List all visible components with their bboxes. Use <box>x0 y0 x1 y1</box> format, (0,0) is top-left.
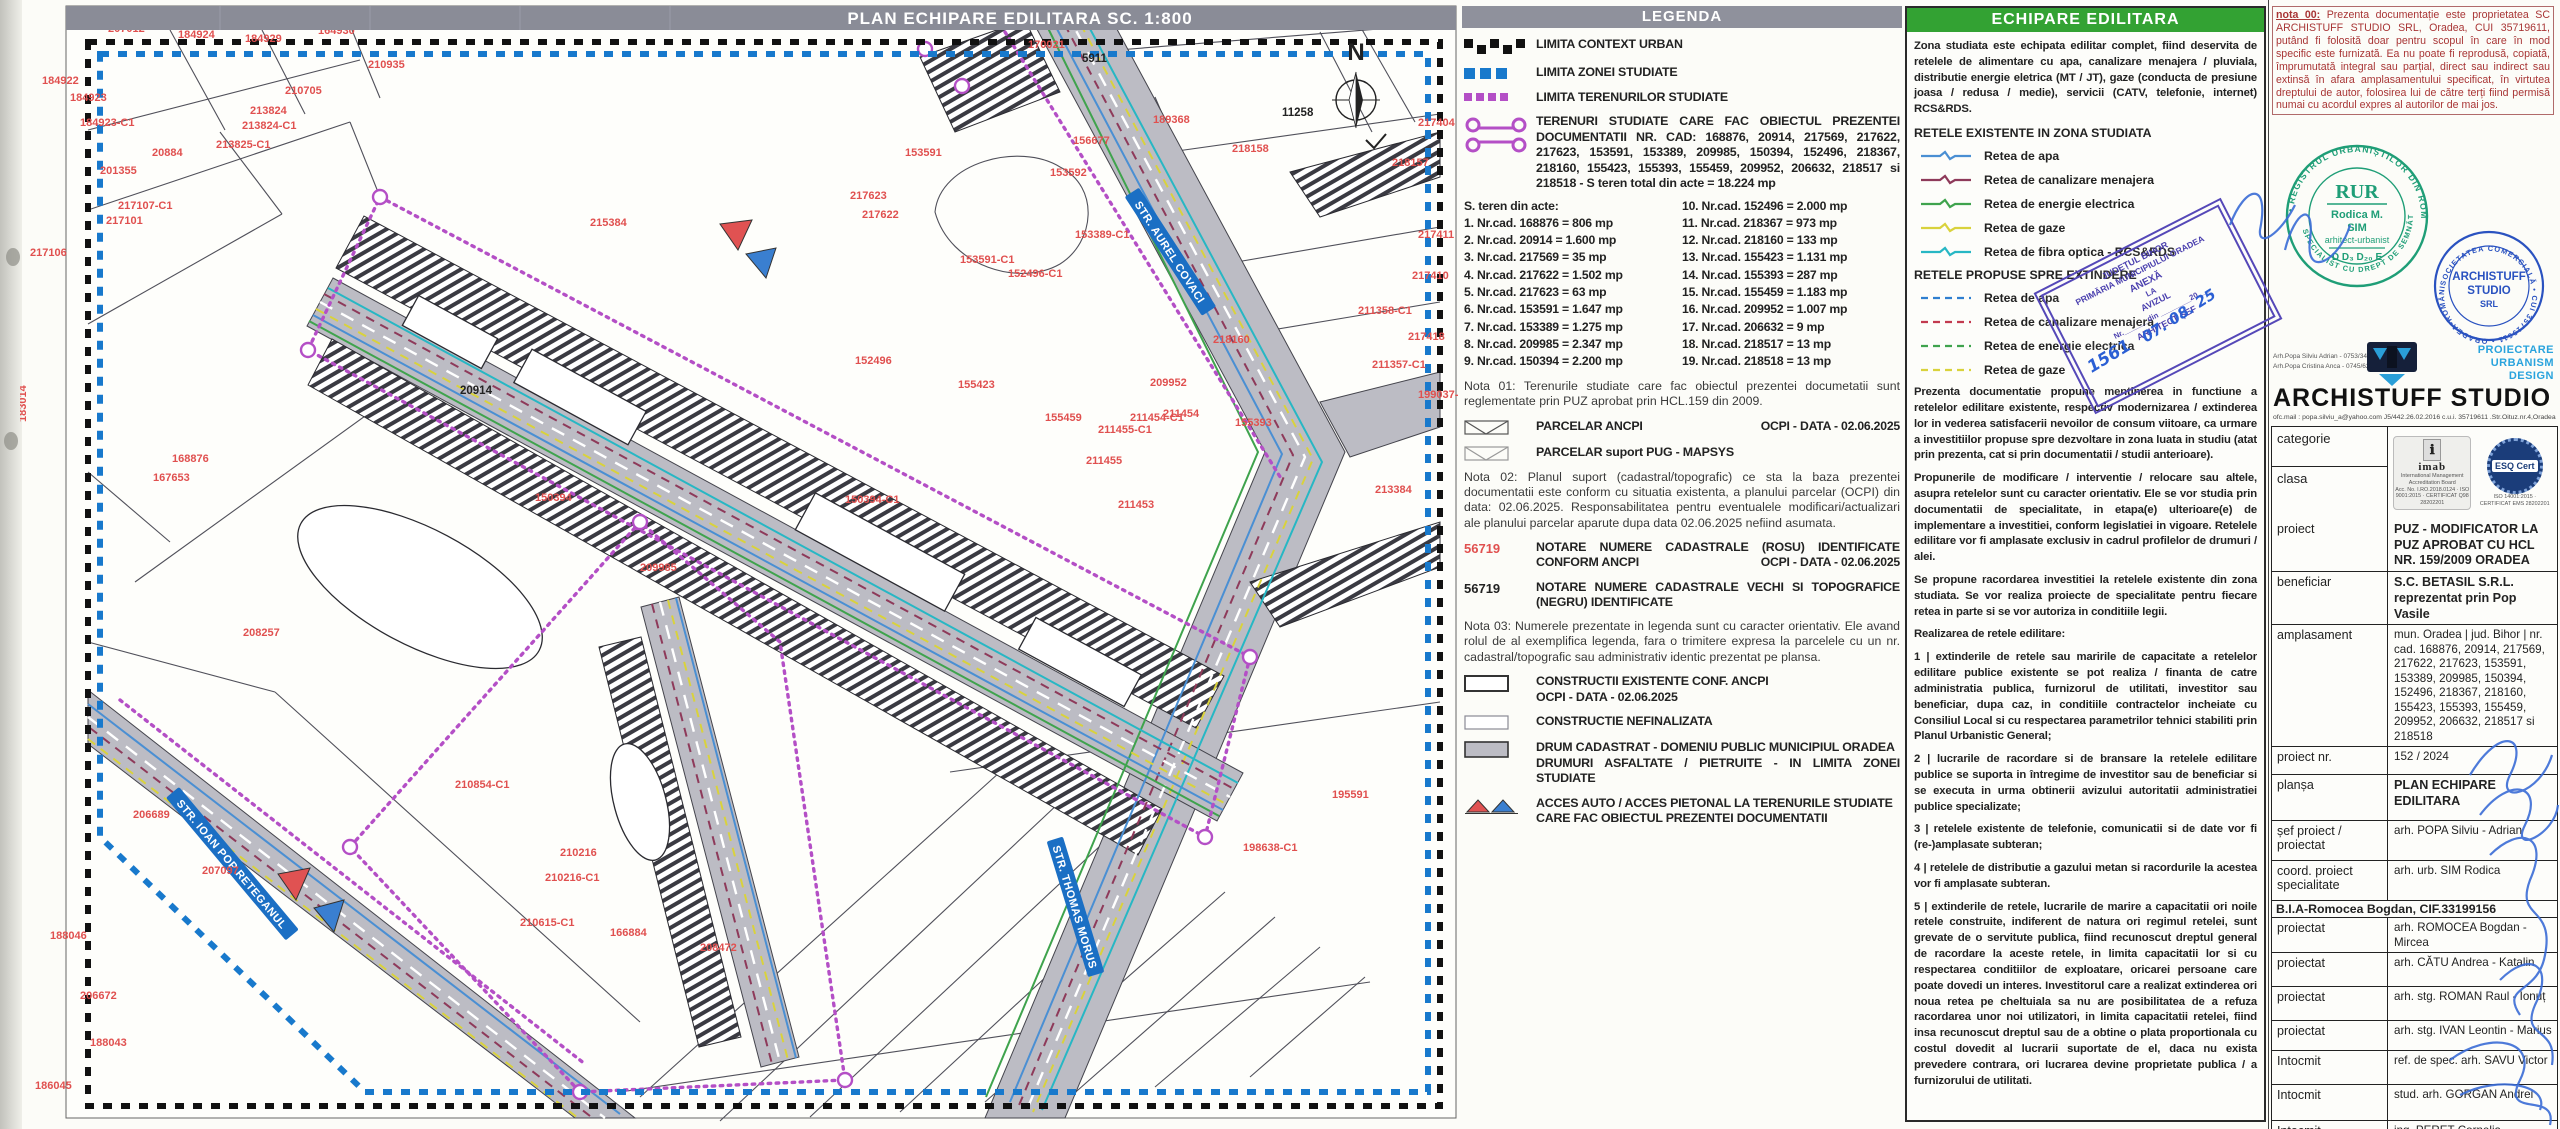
scanned-plan-sheet: N STR. AUREL COVACISTR. IOAN POP RETEGAN… <box>0 0 2560 1129</box>
titleblock-label: Intocmit <box>2272 1051 2388 1084</box>
parcel-number-label: 20914 <box>460 385 493 397</box>
parcel-number-label: 201355 <box>100 165 137 177</box>
legend-label: TERENURI STUDIATE CARE FAC OBIECTUL PREZ… <box>1536 114 1900 192</box>
legend-label: NOTARE NUMERE CADASTRALE (ROSU) IDENTIFI… <box>1536 540 1900 571</box>
titleblock-value: S.C. BETASIL S.R.L.reprezentat prin Pop … <box>2388 572 2557 624</box>
echipare-title: ECHIPARE EDILITARA <box>1907 8 2264 32</box>
titleblock-label: amplasament <box>2272 625 2388 746</box>
legend-panel: LEGENDA LIMITA CONTEXT URBAN LIMITA ZONE… <box>1462 6 1902 1124</box>
network-label: Retea de gaze <box>1984 221 2065 235</box>
esq-certificate-badge: ESQ Cert ISO 14001:2015 · CERTIFICAT EMS… <box>2478 438 2552 508</box>
firm-name: ARCHISTUFF STUDIO <box>2273 384 2551 413</box>
echipare-intro: Zona studiata este echipata edilitar com… <box>1914 39 2257 118</box>
parcel-number-label: 210216 <box>560 847 597 859</box>
network-line-swatch <box>1920 316 1972 328</box>
nota-03: Nota 03: Numerele prezentate in legenda … <box>1464 619 1900 665</box>
parcel-number-label: 211455-C1 <box>1098 424 1152 436</box>
parcel-area-line: 9. Nr.cad. 150394 = 2.200 mp <box>1464 353 1682 370</box>
parcel-number-label: 211358-C1 <box>1358 305 1412 317</box>
parcel-number-label: 168876 <box>172 453 209 465</box>
imab-icon: ℹ <box>2423 439 2441 461</box>
parcel-number-label: 153591 <box>905 147 942 159</box>
parcel-number-label: 210935 <box>368 59 405 71</box>
titleblock-value: PLAN ECHIPARE EDILITARA <box>2388 775 2557 820</box>
network-line-swatch <box>1920 292 1972 304</box>
binder-hole <box>6 248 20 266</box>
service-line: DESIGN <box>2478 370 2554 383</box>
legend-label: LIMITA ZONEI STUDIATE <box>1536 65 1900 81</box>
echipare-paragraph: 4 | retelele de distributie a gazului me… <box>1914 861 2257 893</box>
network-line-swatch <box>1920 340 1972 352</box>
legend-label: PARCELAR suport PUG - MAPSYS <box>1536 445 1900 461</box>
titleblock-value: arh. urb. SIM Rodica <box>2388 861 2557 900</box>
titleblock-value: PUZ - MODIFICATOR LA PUZ APROBAT CU HCL … <box>2388 519 2557 571</box>
parcel-number-label: 5911 <box>1082 53 1108 65</box>
legend-label: LIMITA TERENURILOR STUDIATE <box>1536 90 1900 106</box>
parcel-envelope-icon <box>1464 419 1536 436</box>
rur-person: SIM <box>2347 222 2367 234</box>
rur-stamp: • REGISTRUL URBANIȘTILOR DIN ROMÂNIA • S… <box>2279 136 2435 296</box>
parcel-number-label: 155459 <box>1045 412 1082 424</box>
legend-item-drum: DRUM CADASTRAT - DOMENIU PUBLIC MUNICIPI… <box>1464 740 1900 787</box>
network-legend-row: Retea de apa <box>1920 148 2257 164</box>
legend-item-constructie-nefinalizata: CONSTRUCTIE NEFINALIZATA <box>1464 714 1900 731</box>
parcel-number-label: 198638-C1 <box>1243 842 1297 854</box>
ocpi-date: OCPI - DATA - 02.06.2025 <box>1761 555 1900 569</box>
titleblock-row: Intocmiting. PEREȚ Cornelia <box>2272 1120 2557 1129</box>
parcel-number-label: 195591 <box>1332 789 1369 801</box>
parcel-area-line: 18. Nr.cad. 218517 = 13 mp <box>1682 336 1900 353</box>
titleblock-label: Intocmit <box>2272 1121 2388 1129</box>
white-box-icon <box>1464 674 1536 693</box>
titleblock-label: șef proiect /proiectat <box>2272 821 2388 860</box>
parcel-number-label: 184923 <box>70 92 107 104</box>
legend-label: LIMITA CONTEXT URBAN <box>1536 37 1900 53</box>
network-line-swatch <box>1920 246 1972 258</box>
parcel-number-label: 210854-C1 <box>455 779 509 791</box>
parcel-number-label: 211453 <box>1118 499 1154 511</box>
imab-subtitle: International Management Accreditation B… <box>2395 473 2469 487</box>
retele-existente-header: RETELE EXISTENTE IN ZONA STUDIATA <box>1914 126 2257 140</box>
parcel-area-line: 8. Nr.cad. 209985 = 2.347 mp <box>1464 336 1682 353</box>
parcel-number-label: 211357-C1 <box>1372 359 1426 371</box>
parcel-area-line: 7. Nr.cad. 153389 = 1.275 mp <box>1464 319 1682 336</box>
parcel-number-label: 217623 <box>850 190 887 202</box>
map-title: PLAN ECHIPARE EDILITARA SC. 1:800 <box>847 9 1192 28</box>
legend-label: ACCES AUTO / ACCES PIETONAL LA TERENURIL… <box>1536 796 1900 827</box>
titleblock-label: beneficiar <box>2272 572 2388 624</box>
parcel-number-label: 208472 <box>700 942 737 954</box>
firm-services: PROIECTARE URBANISM DESIGN <box>2478 344 2554 384</box>
parcel-area-line: 11. Nr.cad. 218367 = 973 mp <box>1682 215 1900 232</box>
parcel-number-label: 167653 <box>153 472 190 484</box>
thin-white-box-icon <box>1464 714 1536 731</box>
parcel-number-label: 217418 <box>1408 331 1445 343</box>
parcel-number-label: 208257 <box>243 627 280 639</box>
parcel-number-label: 210705 <box>285 85 322 97</box>
parcel-number-label: 184924 <box>178 29 216 41</box>
parcel-area-line: 5. Nr.cad. 217623 = 63 mp <box>1464 284 1682 301</box>
parcel-number-label: 218160 <box>1213 334 1250 346</box>
titleblock-value: arh. CĂTU Andrea - Katalin <box>2388 953 2557 986</box>
service-line: URBANISM <box>2478 357 2554 370</box>
parcel-number-label: 152496 <box>855 355 892 367</box>
titleblock-row: proiectatarh. ROMOCEA Bogdan - Mircea <box>2272 917 2557 952</box>
parcel-number-label: 188043 <box>90 1037 127 1049</box>
nota-00-lead: nota 00: <box>2276 9 2320 21</box>
parcel-number-label: 184929 <box>245 33 282 45</box>
legend-label: CONSTRUCTII EXISTENTE CONF. ANCPIOCPI - … <box>1536 674 1900 705</box>
blue-dashed-line-icon <box>1464 65 1536 80</box>
parcel-number-label: 206672 <box>80 990 117 1002</box>
esq-name: ESQ Cert <box>2492 460 2538 472</box>
parcel-number-label: 150394-C1 <box>845 494 899 506</box>
gray-box-icon <box>1464 740 1536 759</box>
parcel-number-label: 209985 <box>640 562 677 574</box>
titleblock-row: Intocmitstud. arh. GORGAN Andrei <box>2272 1084 2557 1120</box>
parcel-number-label: 217411 <box>1418 229 1454 241</box>
parcel-number-label: 210216-C1 <box>545 872 599 884</box>
parcel-number-label: 217101 <box>106 215 143 227</box>
firm-registration-info: ofc.mail : popa.silviu_a@yahoo.com J5/44… <box>2273 414 2557 421</box>
esq-cert-lines: ISO 14001:2015 · CERTIFICAT EMS 28202201 <box>2478 494 2552 508</box>
parcel-number-label: 207097 <box>202 865 239 877</box>
titleblock-value: arh. stg. IVAN Leontin - Marius <box>2388 1021 2557 1050</box>
titleblock-row: proiectatarh. stg. ROMAN Raul - Ionuț <box>2272 986 2557 1020</box>
network-line-swatch <box>1920 150 1972 162</box>
legend-item-zona-studiata: LIMITA ZONEI STUDIATE <box>1464 65 1900 81</box>
legend-label: CONSTRUCTIE NEFINALIZATA <box>1536 714 1900 730</box>
company-name: STUDIO <box>2467 285 2511 297</box>
map-title-bar: PLAN ECHIPARE EDILITARA SC. 1:800 <box>66 6 1456 30</box>
rur-title: arhitect-urbanist <box>2325 235 2390 245</box>
network-label: Retea de gaze <box>1984 363 2065 377</box>
north-label: N <box>1347 39 1364 66</box>
titleblock-row: Intocmitref. de spec. arh. SAVU Victor <box>2272 1050 2557 1084</box>
parcel-number-label: 11258 <box>1282 107 1314 119</box>
echipare-paragraph: Realizarea de retele edilitare: <box>1914 627 2257 643</box>
sample-number-black: 56719 <box>1464 580 1536 596</box>
parcel-number-label: 153389-C1 <box>1075 229 1129 241</box>
rur-person: Rodica M. <box>2331 209 2383 221</box>
titleblock-value: ing. PEREȚ Cornelia <box>2388 1121 2557 1129</box>
parcel-number-label: 213824-C1 <box>242 120 296 132</box>
titleblock-label: proiectat <box>2272 918 2388 952</box>
titleblock-row: beneficiarS.C. BETASIL S.R.L.reprezentat… <box>2272 571 2557 624</box>
rur-categories: D D₃ D₂₀ E <box>2332 252 2383 263</box>
parcel-envelope-icon <box>1464 445 1536 462</box>
nota-00-copyright: nota 00: Prezenta documentație este prop… <box>2272 6 2554 115</box>
legend-item-terenuri-obiect: TERENURI STUDIATE CARE FAC OBIECTUL PREZ… <box>1464 114 1900 192</box>
archistuff-logo <box>2365 342 2419 388</box>
parcel-number-label: 213384 <box>1375 484 1413 496</box>
parcel-number-label: 152496-C1 <box>1008 268 1062 280</box>
parcel-number-label: 153592 <box>1050 167 1087 179</box>
parcel-number-label: 213824 <box>250 105 288 117</box>
parcel-number-label: 184922 <box>42 75 79 87</box>
parcel-area-line: 12. Nr.cad. 218160 = 133 mp <box>1682 232 1900 249</box>
parcel-area-line: 14. Nr.cad. 155393 = 287 mp <box>1682 267 1900 284</box>
parcel-area-line: 1. Nr.cad. 168876 = 806 mp <box>1464 215 1682 232</box>
company-name: SRL <box>2480 299 2499 309</box>
parcel-area-line: 17. Nr.cad. 206632 = 9 mp <box>1682 319 1900 336</box>
imab-cert-lines: Acc. No. I.RO.2018.0124 · ISO 9001:2015 … <box>2395 487 2469 507</box>
legend-item-notare-rosu: 56719 NOTARE NUMERE CADASTRALE (ROSU) ID… <box>1464 540 1900 571</box>
scanner-edge <box>0 0 22 1129</box>
magenta-dashed-line-icon <box>1464 90 1536 103</box>
legend-item-acces: ACCES AUTO / ACCES PIETONAL LA TERENURIL… <box>1464 796 1900 827</box>
parcel-number-label: 170021 <box>1028 39 1065 51</box>
parcel-number-label: 211455 <box>1086 455 1122 467</box>
titleblock-label: coord. proiectspecialitate <box>2272 861 2388 900</box>
company-stamp: SOCIETATEA COMERCIALĂ • CUI 35719611 • O… <box>2431 228 2547 344</box>
titleblock-row: șef proiect /proiectatarh. POPA Silviu -… <box>2272 820 2557 860</box>
legend-item-terenuri-studiate: LIMITA TERENURILOR STUDIATE <box>1464 90 1900 106</box>
parcel-number-label: 217404 <box>1418 117 1456 129</box>
imab-name: imab <box>2395 461 2469 473</box>
echipare-paragraph: 5 | extinderile de retele, lucrarile de … <box>1914 900 2257 1090</box>
titleblock-value: 152 / 2024 <box>2388 747 2557 774</box>
titleblock-section-title: B.I.A-Romocea Bogdan, CIF.33199156 <box>2272 901 2557 917</box>
titleblock-row: proiectatarh. stg. IVAN Leontin - Marius <box>2272 1020 2557 1050</box>
clasa-label: clasa <box>2272 467 2387 515</box>
titleblock-label: proiectat <box>2272 953 2388 986</box>
parcel-number-label: 183014 <box>20 384 29 422</box>
legend-title: LEGENDA <box>1462 6 1902 28</box>
legend-label: PARCELAR ANCPIOCPI - DATA - 02.06.2025 <box>1536 419 1900 435</box>
parcel-number-label: 209952 <box>1150 377 1187 389</box>
parcel-number-label: 218158 <box>1232 143 1269 155</box>
black-dashed-line-icon <box>1464 37 1536 56</box>
company-name: ARCHISTUFF <box>2452 271 2525 283</box>
titleblock-row: B.I.A-Romocea Bogdan, CIF.33199156 <box>2272 900 2557 917</box>
nota-02: Nota 02: Planul suport (cadastral/topogr… <box>1464 470 1900 531</box>
parcel-area-line: 13. Nr.cad. 155423 = 1.131 mp <box>1682 249 1900 266</box>
certification-rows: categorie clasa ℹ imab International Man… <box>2272 427 2557 519</box>
network-line-swatch <box>1920 174 1972 186</box>
parcel-area-line: 16. Nr.cad. 209952 = 1.007 mp <box>1682 301 1900 318</box>
parcel-number-label: 217107-C1 <box>118 200 172 212</box>
cadastral-map: N STR. AUREL COVACISTR. IOAN POP RETEGAN… <box>20 2 1458 1123</box>
titleblock-row: amplasamentmun. Oradea | jud. Bihor | nr… <box>2272 624 2557 746</box>
network-legend-row: Retea de canalizare menajera <box>1920 172 2257 188</box>
titleblock-value: ref. de spec. arh. SAVU Victor <box>2388 1051 2557 1084</box>
legend-label: DRUM CADASTRAT - DOMENIU PUBLIC MUNICIPI… <box>1536 740 1900 787</box>
title-block-column: nota 00: Prezenta documentație este prop… <box>2268 0 2560 1129</box>
echipare-paragraphs: Prezenta documentatie propune mentinerea… <box>1914 385 2257 1089</box>
network-line-swatch <box>1920 364 1972 376</box>
network-label: Retea de energie electrica <box>1984 197 2134 211</box>
titleblock-label: proiect nr. <box>2272 747 2388 774</box>
imab-certificate-badge: ℹ imab International Management Accredit… <box>2393 436 2471 510</box>
echipare-paragraph: Prezenta documentatie propune mentinerea… <box>1914 385 2257 464</box>
legend-label: NOTARE NUMERE CADASTRALE VECHI SI TOPOGR… <box>1536 580 1900 611</box>
parcel-number-label: 211454 <box>1163 408 1200 420</box>
parcel-number-label: 166884 <box>610 927 648 939</box>
parcel-number-label: 217106 <box>30 247 67 259</box>
parcel-area-line: 2. Nr.cad. 20914 = 1.600 mp <box>1464 232 1682 249</box>
parcel-area-line: 3. Nr.cad. 217569 = 35 mp <box>1464 249 1682 266</box>
titleblock-row: coord. proiectspecialitatearh. urb. SIM … <box>2272 860 2557 900</box>
parcel-number-label: 188046 <box>50 930 87 942</box>
parcel-number-label: 189368 <box>1153 114 1190 126</box>
echipare-paragraph: 1 | extinderile de retele sau maririle d… <box>1914 650 2257 745</box>
titleblock-value: mun. Oradea | jud. Bihor | nr. cad. 1688… <box>2388 625 2557 746</box>
parcel-area-line: 10. Nr.cad. 152496 = 2.000 mp <box>1682 198 1900 215</box>
parcel-number-label: 155423 <box>958 379 995 391</box>
parcel-number-label: 217410 <box>1412 270 1449 282</box>
parcel-number-label: 156677 <box>1073 135 1110 147</box>
parcel-area-list: S. teren din acte: 1. Nr.cad. 168876 = 8… <box>1464 198 1900 371</box>
titleblock-value: arh. stg. ROMAN Raul - Ionuț <box>2388 987 2557 1020</box>
nota-00-body: Prezenta documentație este proprietatea … <box>2276 9 2550 111</box>
titleblock-label: planșa <box>2272 775 2388 820</box>
parcel-number-label: 153591-C1 <box>960 254 1014 266</box>
svg-text:• REGISTRUL URBANIȘTILOR DIN R: • REGISTRUL URBANIȘTILOR DIN ROMÂNIA • <box>2279 136 2429 220</box>
titleblock-label: proiect <box>2272 519 2388 571</box>
echipare-paragraph: 3 | retelele existente de telefonie, com… <box>1914 822 2257 854</box>
legend-item-notare-negru: 56719 NOTARE NUMERE CADASTRALE VECHI SI … <box>1464 580 1900 611</box>
legend-item-constructii-existente: CONSTRUCTII EXISTENTE CONF. ANCPIOCPI - … <box>1464 674 1900 705</box>
sample-number-red: 56719 <box>1464 540 1536 556</box>
network-label: Retea de apa <box>1984 149 2059 163</box>
network-label: Retea de canalizare menajera <box>1984 173 2154 187</box>
parcel-number-label: 155393 <box>1235 417 1272 429</box>
titleblock-value: stud. arh. GORGAN Andrei <box>2388 1085 2557 1120</box>
echipare-paragraph: Se propune racordarea investitiei la ret… <box>1914 573 2257 620</box>
echipare-paragraph: Propunerile de modificare / interventie … <box>1914 471 2257 566</box>
titleblock-value: arh. ROMOCEA Bogdan - Mircea <box>2388 918 2557 952</box>
access-triangles-icon <box>1464 796 1536 815</box>
area-list-header: S. teren din acte: <box>1464 198 1682 215</box>
parcel-area-line: 6. Nr.cad. 153591 = 1.647 mp <box>1464 301 1682 318</box>
network-line-swatch <box>1920 222 1972 234</box>
legend-item-parcelar-ancpi: PARCELAR ANCPIOCPI - DATA - 02.06.2025 <box>1464 419 1900 436</box>
parcel-number-label: 199037-C1 <box>1418 389 1458 401</box>
titleblock-row: proiectPUZ - MODIFICATOR LA PUZ APROBAT … <box>2272 519 2557 571</box>
titleblock-row: planșaPLAN ECHIPARE EDILITARA <box>2272 774 2557 820</box>
titleblock-label: proiectat <box>2272 1021 2388 1050</box>
parcel-number-label: 217622 <box>862 209 899 221</box>
titleblock-row: proiect nr.152 / 2024 <box>2272 746 2557 774</box>
titleblock-row: proiectatarh. CĂTU Andrea - Katalin <box>2272 952 2557 986</box>
network-line-swatch <box>1920 198 1972 210</box>
echipare-paragraph: 2 | lucrarile de racordare si de bransar… <box>1914 752 2257 815</box>
title-block-table: categorie clasa ℹ imab International Man… <box>2271 426 2558 1129</box>
parcel-number-label: 218157 <box>1392 157 1429 169</box>
parcel-number-label: 213825-C1 <box>216 139 270 151</box>
titleblock-label: Intocmit <box>2272 1085 2388 1120</box>
parcel-number-label: 215384 <box>590 217 628 229</box>
parcel-number-label: 210615-C1 <box>520 917 574 929</box>
service-line: PROIECTARE <box>2478 344 2554 357</box>
parcel-number-label: 184923-C1 <box>80 117 134 129</box>
binder-hole <box>4 432 18 450</box>
parcel-number-label: 186045 <box>35 1080 72 1092</box>
rur-name: RUR <box>2335 181 2379 203</box>
parcel-number-label: 20884 <box>152 147 183 159</box>
echipare-edilitara-panel: ECHIPARE EDILITARA Zona studiata este ec… <box>1905 6 2266 1122</box>
titleblock-label: proiectat <box>2272 987 2388 1020</box>
legend-item-parcelar-pug: PARCELAR suport PUG - MAPSYS <box>1464 445 1900 462</box>
titleblock-value: arh. POPA Silviu - Adrian <box>2388 821 2557 860</box>
legend-item-context-urban: LIMITA CONTEXT URBAN <box>1464 37 1900 56</box>
categorie-label: categorie <box>2272 427 2387 467</box>
parcel-area-line: 4. Nr.cad. 217622 = 1.502 mp <box>1464 267 1682 284</box>
parcel-number-label: 150394 <box>535 492 573 504</box>
nota-01: Nota 01: Terenurile studiate care fac ob… <box>1464 379 1900 410</box>
magenta-boundary-symbol-icon <box>1464 114 1536 155</box>
parcel-number-label: 206689 <box>133 809 170 821</box>
parcel-area-line: 15. Nr.cad. 155459 = 1.183 mp <box>1682 284 1900 301</box>
rur-ring-text: • REGISTRUL URBANIȘTILOR DIN ROMÂNIA • <box>2279 136 2429 220</box>
ocpi-date: OCPI - DATA - 02.06.2025 <box>1761 419 1900 433</box>
parcel-area-line: 19. Nr.cad. 218518 = 13 mp <box>1682 353 1900 370</box>
